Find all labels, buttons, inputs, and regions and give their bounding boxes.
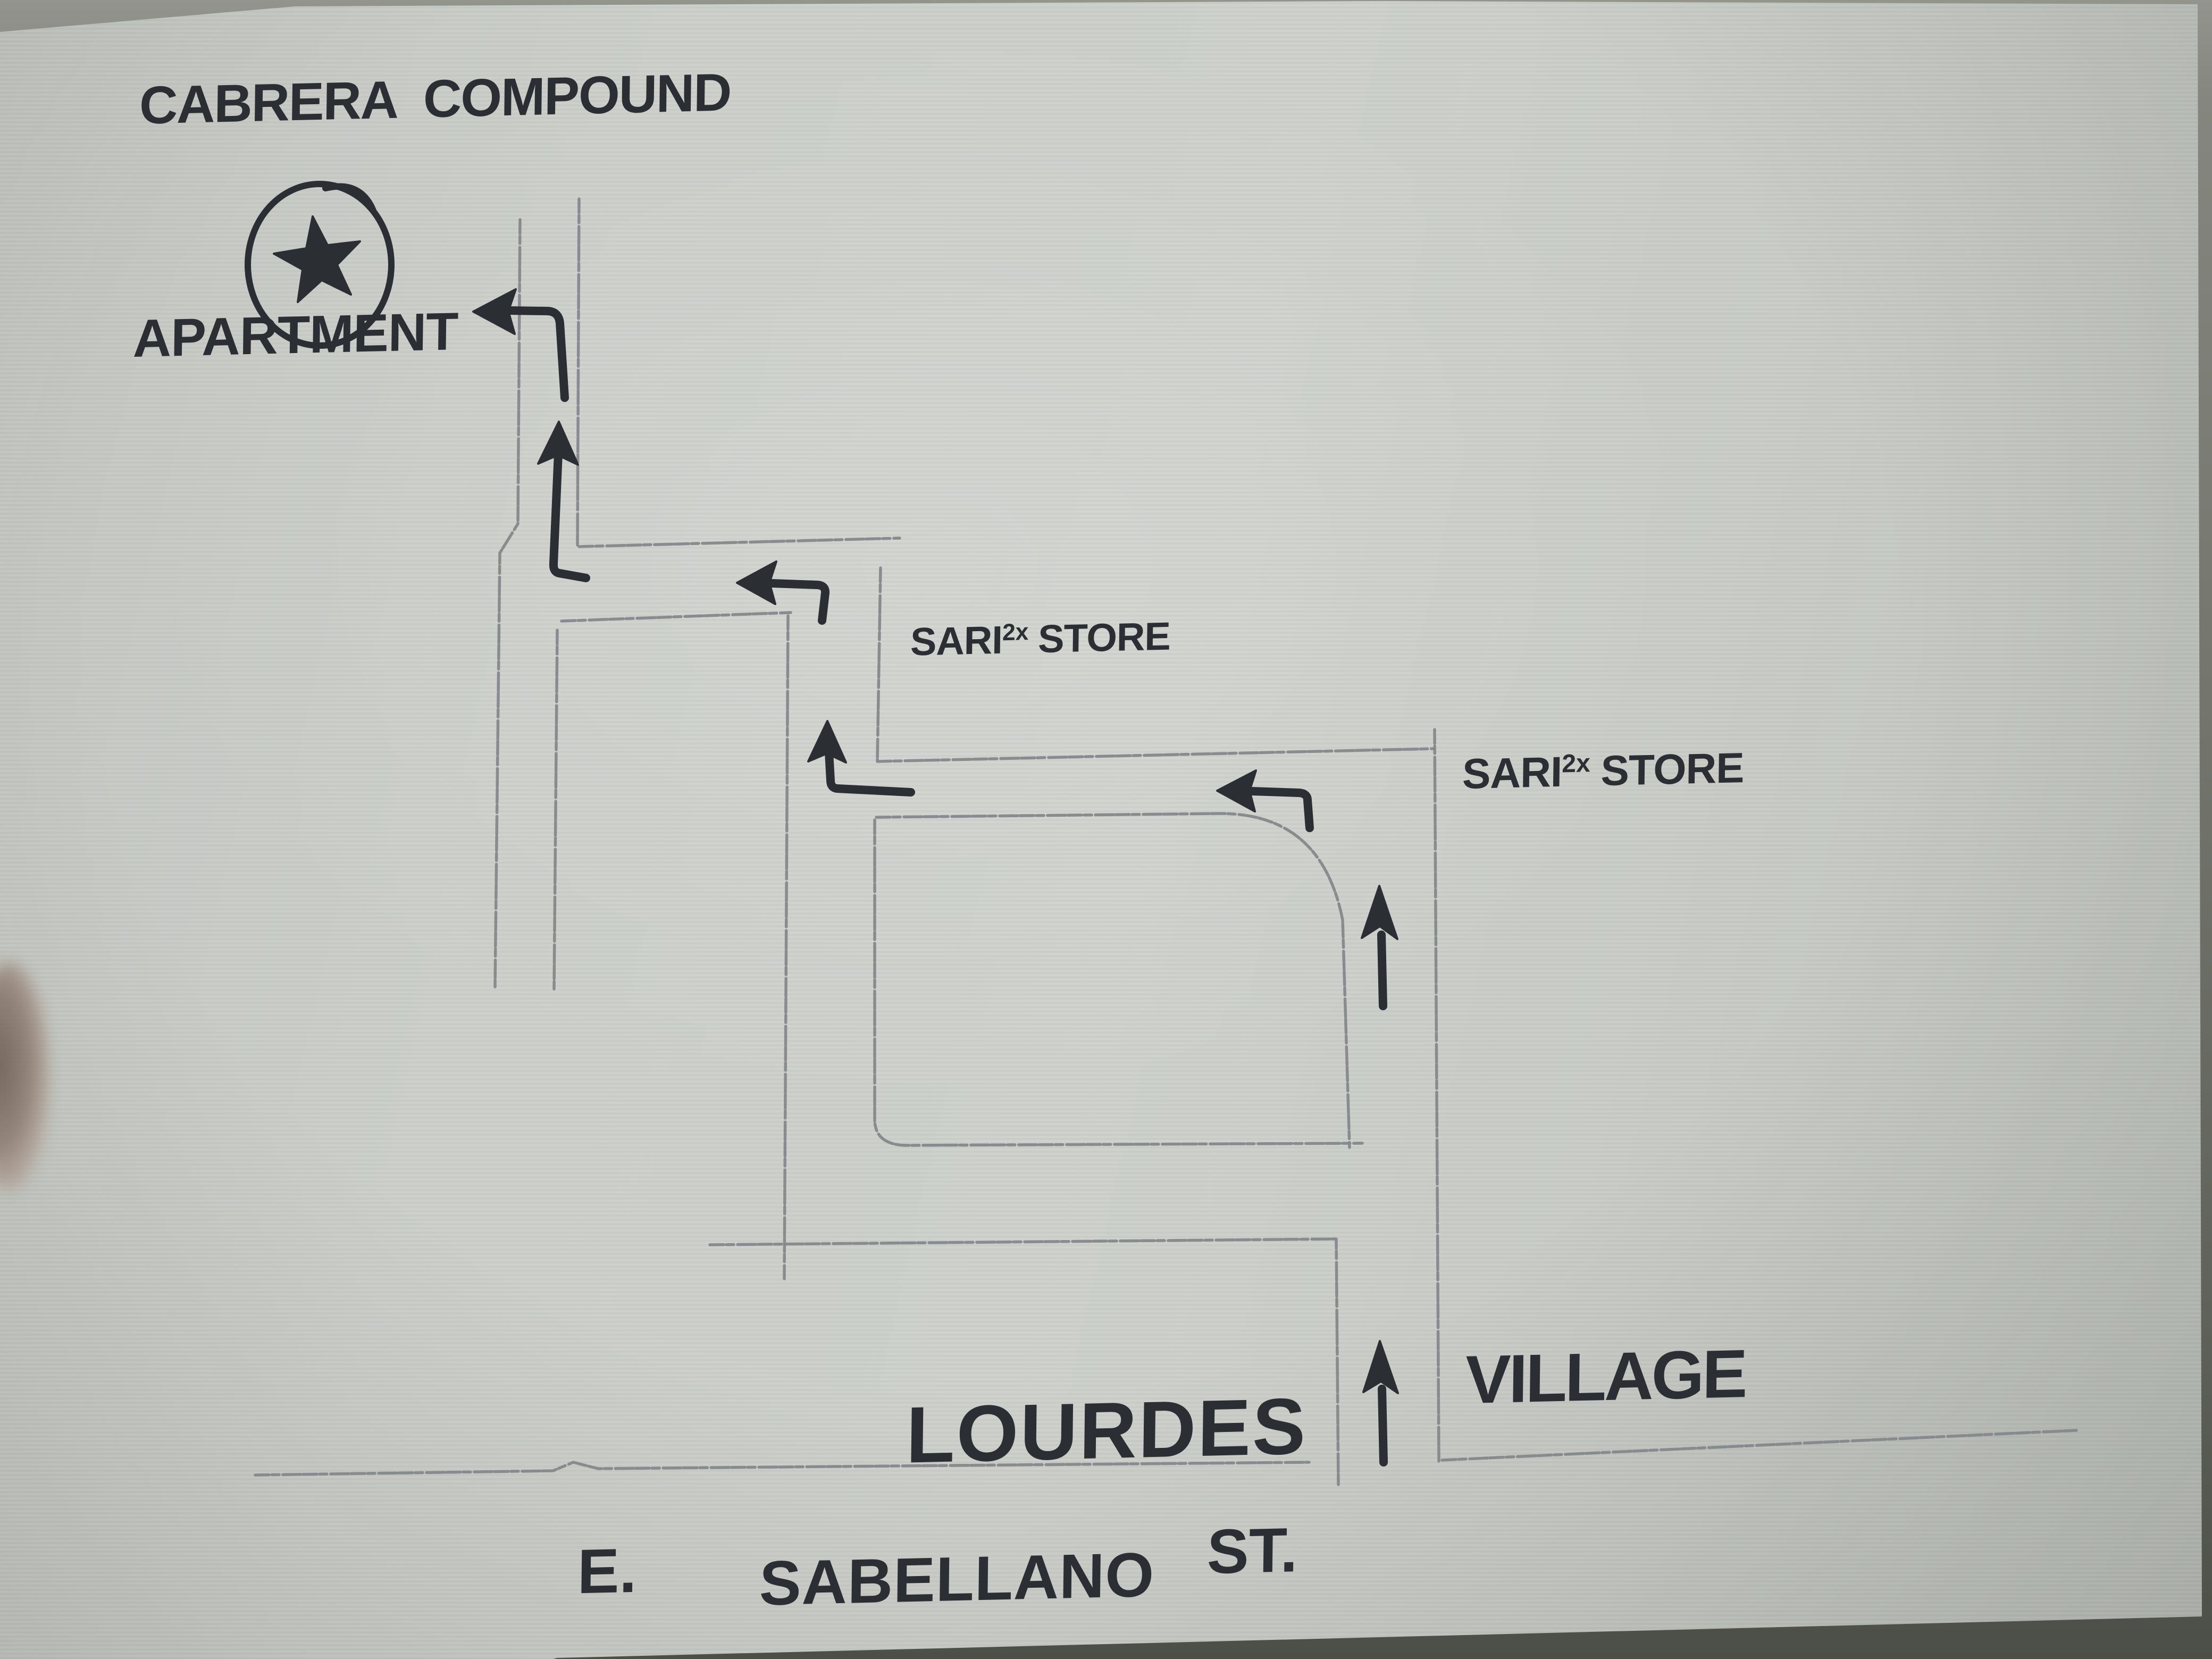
sari-store-label-2: SARI2xSTORE — [1462, 747, 1745, 795]
star-icon — [274, 216, 360, 302]
sari1-sup: 2x — [1002, 621, 1029, 645]
sari-store-label-1: SARI2xSTORE — [910, 616, 1171, 661]
road-apartment-left-edge — [495, 220, 520, 987]
road-village-street-right-edge — [1435, 730, 1439, 1461]
sari2-word: SARI — [1462, 748, 1562, 798]
road-street1-top-edge — [579, 538, 900, 547]
sari1-word2: STORE — [1038, 614, 1171, 661]
road-street2-top-edge — [877, 749, 1434, 761]
sabellano-street-name: SABELLANO — [759, 1544, 1154, 1615]
block-left-and-bottom-edge — [875, 820, 1362, 1145]
sari2-word2: STORE — [1601, 744, 1744, 794]
sabellano-street-prefix: E. — [577, 1539, 637, 1604]
route-arrow-up-connector — [808, 721, 911, 792]
route-arrow-up-village-street-upper — [1362, 886, 1397, 1006]
route-marks — [248, 184, 1398, 1462]
road-street1-bottom-edge — [562, 613, 791, 621]
map-title: CABRERA COMPOUND — [139, 65, 731, 132]
road-connector-left-edge — [784, 616, 788, 1279]
apartment-label: APARTMENT — [132, 305, 458, 365]
sabellano-street-suffix: ST. — [1206, 1519, 1298, 1583]
sari1-word: SARI — [910, 618, 1003, 664]
sari2-sup: 2x — [1562, 751, 1590, 777]
road-apartment-right-edge-upper — [577, 199, 579, 545]
lourdes-label: LOURDES — [906, 1386, 1308, 1474]
photo-of-hand-drawn-map: CABRERA COMPOUND APARTMENT SARI2xSTORE S… — [0, 0, 2212, 1659]
route-arrow-up-village-street-lower — [1363, 1341, 1398, 1462]
road-network — [255, 199, 2076, 1485]
road-apartment-right-edge-lower — [554, 630, 557, 989]
road-connector-right-edge — [877, 568, 881, 760]
road-sabellano-east-edge — [1442, 1430, 2076, 1460]
village-label: VILLAGE — [1465, 1340, 1746, 1414]
block-top-and-right-edge — [876, 814, 1350, 1147]
